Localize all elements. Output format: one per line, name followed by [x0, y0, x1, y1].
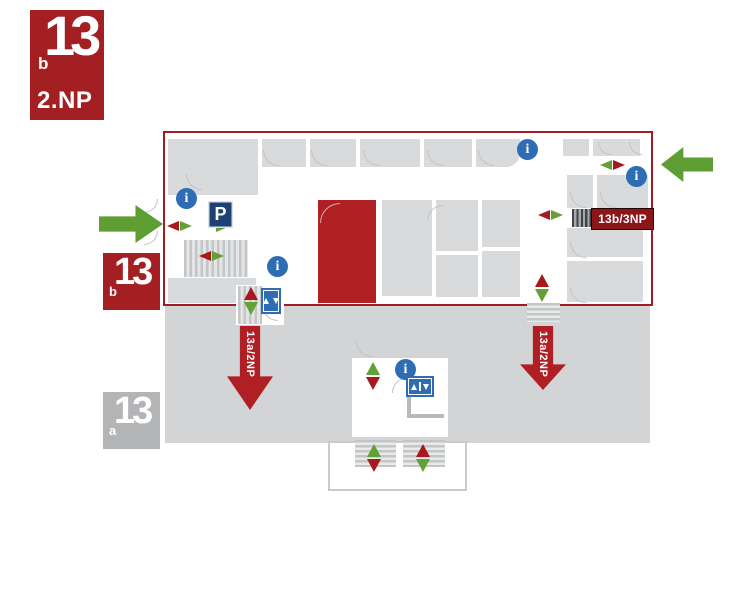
wing-13b-badge: 13 b: [103, 253, 160, 310]
direction-triangle-red: [367, 459, 381, 472]
direction-triangle-green: [416, 459, 430, 472]
direction-marker: [367, 444, 381, 472]
stairs-down-arrow-right-label: 13a/2NP: [537, 331, 549, 377]
direction-triangle-red: [538, 210, 550, 220]
building-floor-badge: 13 b 2.NP: [30, 10, 104, 120]
elevator-glyph: [263, 290, 279, 312]
direction-triangle-green: [244, 302, 258, 315]
room: [563, 139, 589, 156]
direction-triangle-green: [366, 362, 380, 375]
building-extension-outline: [328, 441, 467, 491]
direction-marker: [199, 251, 224, 261]
direction-triangle-red: [167, 221, 179, 231]
direction-marker: [600, 160, 625, 170]
elevator-glyph: [408, 378, 432, 395]
info-icon[interactable]: i: [176, 188, 197, 209]
parking-icon: P: [208, 201, 233, 228]
wing-13a-letter: a: [109, 423, 116, 438]
room: [382, 200, 432, 296]
direction-marker: [167, 221, 192, 231]
direction-marker: [535, 274, 549, 302]
direction-triangle-red: [613, 160, 625, 170]
door-arc: [144, 199, 158, 213]
direction-triangle-green: [212, 251, 224, 261]
building-letter: b: [38, 54, 48, 74]
stairs-to-13b-3np-label: 13b/3NP: [591, 208, 654, 230]
direction-triangle-green: [180, 221, 192, 231]
wing-13a-number: 13: [114, 392, 150, 430]
room: [168, 139, 258, 195]
info-icon[interactable]: i: [267, 256, 288, 277]
info-icon[interactable]: i: [626, 166, 647, 187]
elevator-icon: [261, 288, 281, 314]
direction-triangle-green: [600, 160, 612, 170]
direction-triangle-red: [244, 287, 258, 300]
direction-marker: [416, 444, 430, 472]
room: [482, 200, 520, 247]
info-icon[interactable]: i: [517, 139, 538, 160]
direction-marker: [538, 210, 563, 220]
direction-triangle-red: [199, 251, 211, 261]
building-number: 13: [44, 12, 96, 60]
direction-triangle-red: [416, 444, 430, 457]
direction-triangle-green: [367, 444, 381, 457]
elevator-icon: [406, 376, 434, 397]
direction-marker: [244, 287, 258, 315]
wing-13a-badge: 13 a: [103, 392, 160, 449]
direction-marker: [366, 362, 380, 390]
floor-map: iiiii P 13b/3NP 13a/2NP 13a/2NP 13 b 2.N…: [0, 0, 751, 600]
stairs-down-arrow-left-label: 13a/2NP: [244, 331, 256, 377]
floor-label: 2.NP: [37, 87, 92, 115]
wall-segment: [407, 414, 444, 418]
stairs-icon: [527, 303, 560, 322]
entrance-arrow-east-icon: [661, 147, 713, 182]
direction-triangle-green: [535, 289, 549, 302]
wing-13b-letter: b: [109, 284, 117, 299]
direction-triangle-green: [551, 210, 563, 220]
room: [482, 251, 520, 297]
room: [436, 255, 478, 297]
wing-13b-number: 13: [114, 253, 150, 291]
stairs-icon: [572, 209, 591, 227]
direction-triangle-red: [535, 274, 549, 287]
direction-triangle-red: [366, 377, 380, 390]
